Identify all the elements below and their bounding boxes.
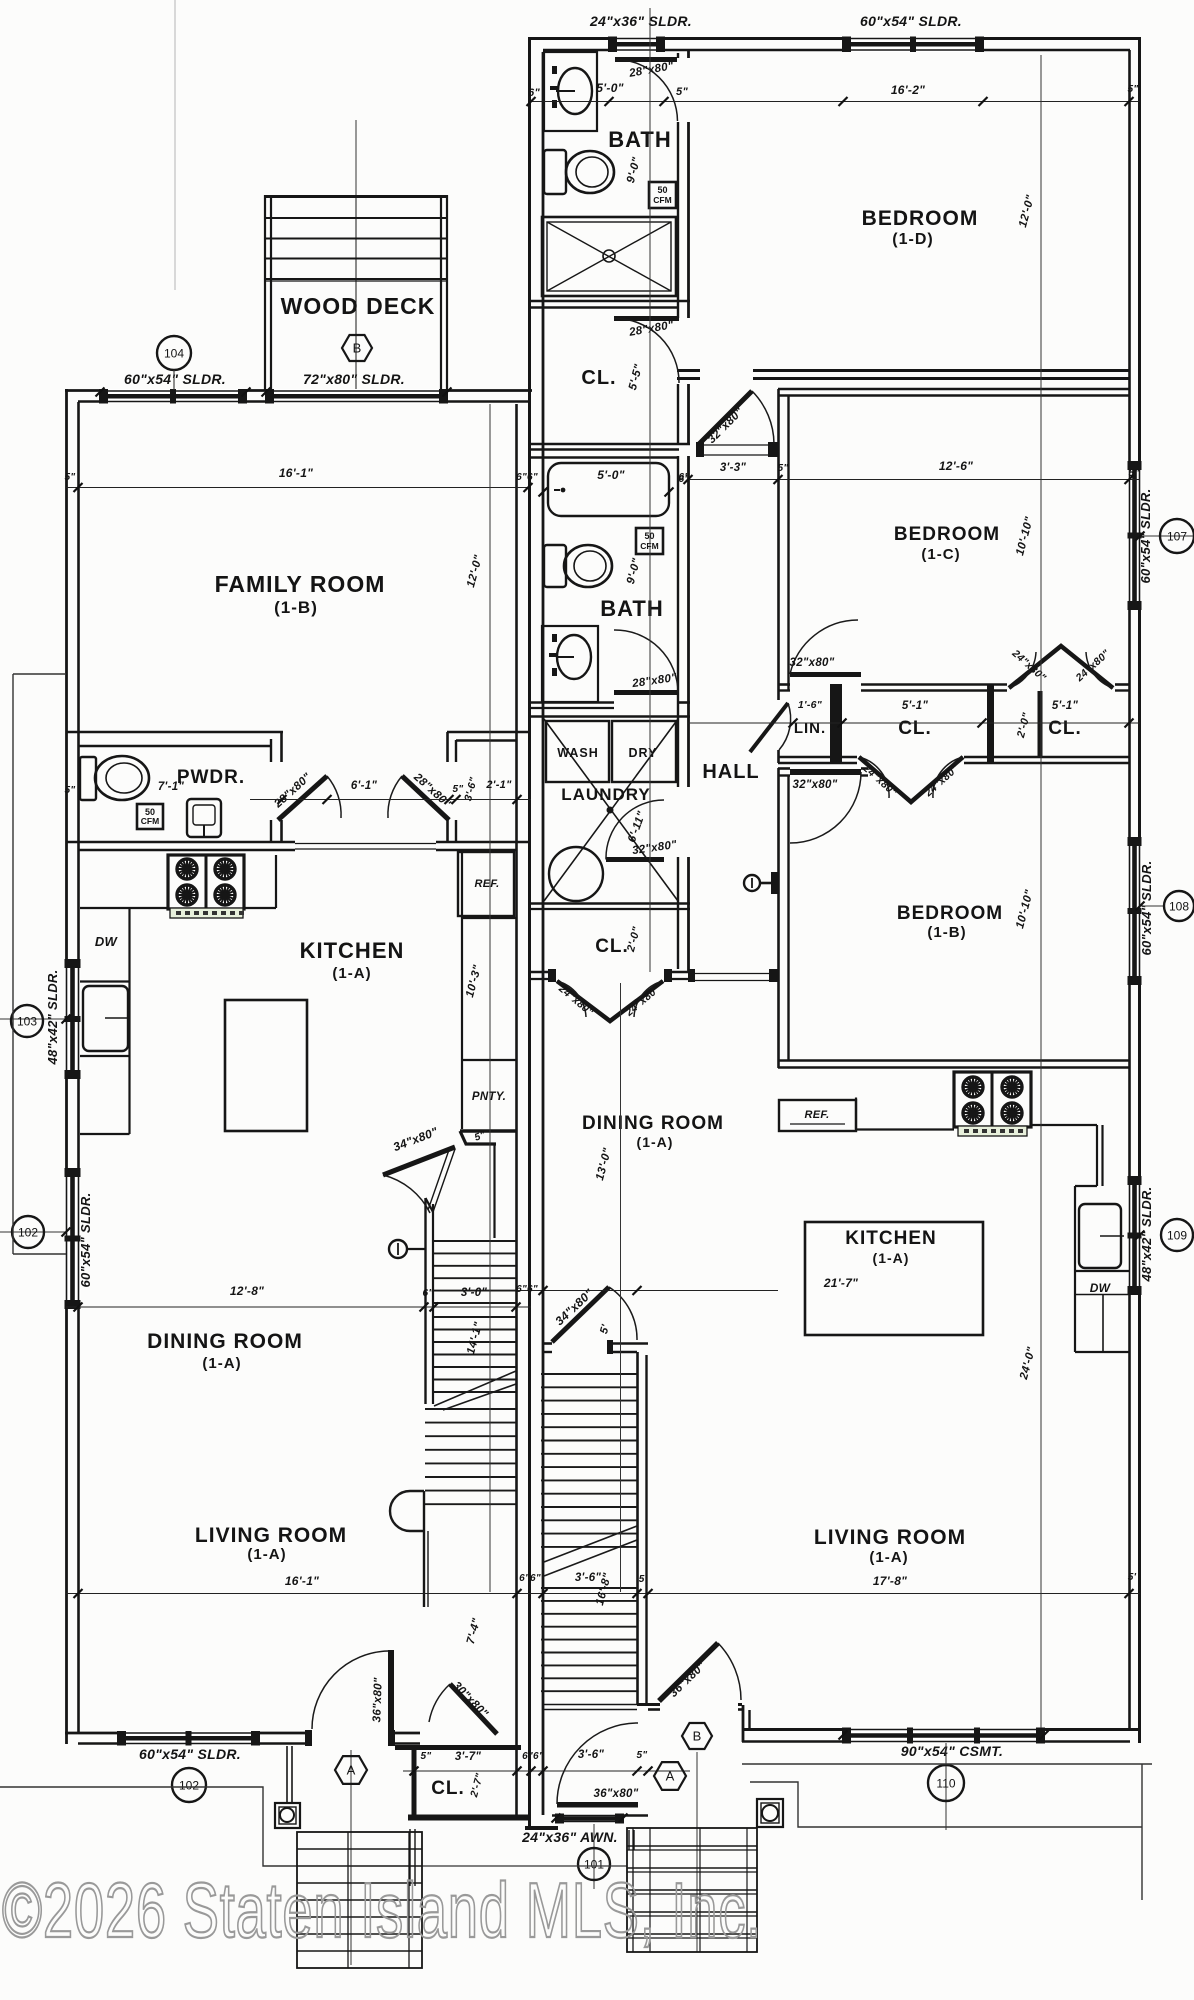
svg-text:(1-A): (1-A) xyxy=(247,1546,286,1563)
svg-text:REF.: REF. xyxy=(804,1109,829,1121)
svg-text:104: 104 xyxy=(164,346,184,360)
svg-text:102: 102 xyxy=(18,1225,38,1239)
svg-text:5": 5" xyxy=(65,472,76,483)
svg-text:PNTY.: PNTY. xyxy=(472,1091,506,1103)
svg-text:CL.: CL. xyxy=(581,367,616,389)
svg-text:5': 5' xyxy=(639,1574,648,1585)
svg-text:KITCHEN: KITCHEN xyxy=(845,1228,936,1249)
svg-text:5": 5" xyxy=(676,86,688,98)
svg-text:B: B xyxy=(693,1729,702,1744)
svg-text:60"x54" SLDR.: 60"x54" SLDR. xyxy=(124,371,226,387)
svg-text:LAUNDRY: LAUNDRY xyxy=(561,785,650,804)
svg-text:DW: DW xyxy=(1090,1281,1112,1295)
svg-text:3'-7": 3'-7" xyxy=(455,1751,482,1763)
svg-text:102: 102 xyxy=(179,1778,199,1792)
svg-text:(1-C): (1-C) xyxy=(921,546,960,563)
svg-text:16'-2": 16'-2" xyxy=(891,83,925,97)
svg-text:109: 109 xyxy=(1167,1228,1187,1242)
svg-text:©2026 Staten Island MLS, Inc.: ©2026 Staten Island MLS, Inc. xyxy=(2,1866,762,1954)
svg-text:CL.: CL. xyxy=(431,1778,465,1799)
svg-text:107: 107 xyxy=(1167,529,1187,543)
svg-text:60"x54" SLDR.: 60"x54" SLDR. xyxy=(139,1746,241,1762)
svg-text:LIVING ROOM: LIVING ROOM xyxy=(195,1524,347,1547)
svg-text:CL.: CL. xyxy=(898,718,932,739)
svg-text:CL.: CL. xyxy=(1048,718,1082,739)
svg-text:60"x54" SLDR.: 60"x54" SLDR. xyxy=(860,13,962,29)
svg-text:5'-0": 5'-0" xyxy=(597,468,624,482)
svg-text:(1-D): (1-D) xyxy=(892,231,933,248)
svg-text:DINING ROOM: DINING ROOM xyxy=(582,1113,724,1134)
svg-text:110: 110 xyxy=(936,1776,955,1790)
svg-text:5'-0": 5'-0" xyxy=(596,81,623,95)
svg-text:60"x54" SLDR.: 60"x54" SLDR. xyxy=(78,1193,93,1288)
svg-text:(1-A): (1-A) xyxy=(637,1134,674,1150)
svg-text:5": 5" xyxy=(778,463,789,474)
svg-text:3'-6": 3'-6" xyxy=(578,1749,605,1761)
svg-text:REF.: REF. xyxy=(474,878,499,890)
svg-text:3'-3": 3'-3" xyxy=(720,462,747,474)
svg-text:36"x80": 36"x80" xyxy=(594,1788,639,1800)
svg-text:6"6": 6"6" xyxy=(516,1284,538,1295)
svg-text:32"x80": 32"x80" xyxy=(790,657,835,669)
svg-text:32"x80": 32"x80" xyxy=(793,779,838,791)
svg-text:WOOD DECK: WOOD DECK xyxy=(281,293,436,319)
svg-text:50: 50 xyxy=(657,185,667,195)
svg-text:B: B xyxy=(353,341,362,356)
svg-text:12'-6": 12'-6" xyxy=(939,459,973,473)
svg-text:BEDROOM: BEDROOM xyxy=(897,903,1003,924)
svg-text:BATH: BATH xyxy=(600,596,663,621)
svg-text:3'-6": 3'-6" xyxy=(575,1572,602,1584)
svg-text:1'-6": 1'-6" xyxy=(798,699,823,711)
svg-text:72"x80" SLDR.: 72"x80" SLDR. xyxy=(303,371,405,387)
svg-text:24"x36" AWN.: 24"x36" AWN. xyxy=(521,1829,618,1845)
svg-text:6"6": 6"6" xyxy=(522,1751,544,1762)
svg-text:17'-8": 17'-8" xyxy=(873,1574,907,1588)
svg-text:CFM: CFM xyxy=(653,195,671,205)
svg-text:21'-7": 21'-7" xyxy=(823,1276,858,1290)
svg-text:16'-1": 16'-1" xyxy=(285,1574,319,1588)
svg-text:(1-B): (1-B) xyxy=(274,598,318,617)
svg-text:6": 6" xyxy=(679,472,690,483)
svg-text:(1-A): (1-A) xyxy=(873,1250,910,1266)
svg-text:7'-1": 7'-1" xyxy=(158,781,185,793)
svg-text:16'-1": 16'-1" xyxy=(279,466,313,480)
svg-text:5": 5" xyxy=(1128,84,1139,95)
svg-text:CL.: CL. xyxy=(595,936,629,957)
svg-text:BEDROOM: BEDROOM xyxy=(894,524,1000,545)
svg-text:5'-1": 5'-1" xyxy=(902,700,929,712)
svg-text:KITCHEN: KITCHEN xyxy=(300,938,405,963)
svg-text:PWDR.: PWDR. xyxy=(177,767,245,788)
svg-text:103: 103 xyxy=(17,1014,37,1028)
svg-text:6'-1": 6'-1" xyxy=(351,780,378,792)
svg-text:3'-0": 3'-0" xyxy=(461,1287,488,1299)
svg-text:A: A xyxy=(666,1769,675,1784)
svg-text:DINING ROOM: DINING ROOM xyxy=(147,1330,303,1353)
svg-text:5": 5" xyxy=(421,1751,432,1762)
svg-text:2'-1": 2'-1" xyxy=(485,779,512,791)
svg-text:90"x54" CSMT.: 90"x54" CSMT. xyxy=(901,1743,1004,1759)
svg-text:BEDROOM: BEDROOM xyxy=(862,207,979,230)
svg-text:6"6": 6"6" xyxy=(519,1573,541,1584)
svg-text:DRY: DRY xyxy=(629,746,658,760)
svg-text:6"6": 6"6" xyxy=(516,472,538,483)
svg-text:CFM: CFM xyxy=(141,816,159,826)
svg-text:5": 5" xyxy=(65,785,76,796)
svg-text:5": 5" xyxy=(637,1750,648,1761)
svg-text:(1-A): (1-A) xyxy=(202,1355,241,1372)
svg-text:60"x54" SLDR.: 60"x54" SLDR. xyxy=(1139,861,1154,956)
svg-text:12'-8": 12'-8" xyxy=(230,1284,264,1298)
svg-text:HALL: HALL xyxy=(702,761,759,783)
svg-text:108: 108 xyxy=(1169,899,1189,913)
svg-text:6": 6" xyxy=(423,1288,434,1299)
svg-text:(1-A): (1-A) xyxy=(332,965,371,982)
svg-text:BATH: BATH xyxy=(608,127,671,152)
svg-text:48"x42" SLDR.: 48"x42" SLDR. xyxy=(45,970,60,1066)
svg-text:FAMILY ROOM: FAMILY ROOM xyxy=(215,571,386,597)
svg-text:(1-A): (1-A) xyxy=(869,1549,908,1566)
svg-text:WASH: WASH xyxy=(557,746,599,760)
svg-text:5': 5' xyxy=(1128,1572,1137,1583)
svg-text:24"x36" SLDR.: 24"x36" SLDR. xyxy=(589,13,692,29)
svg-text:DW: DW xyxy=(95,934,119,949)
svg-text:LIVING ROOM: LIVING ROOM xyxy=(814,1526,966,1549)
svg-text:5": 5" xyxy=(453,784,464,795)
svg-text:5'-1": 5'-1" xyxy=(1052,700,1079,712)
svg-text:(1-B): (1-B) xyxy=(927,924,966,941)
svg-text:A: A xyxy=(347,1763,356,1778)
svg-text:36"x80": 36"x80" xyxy=(371,1677,385,1723)
